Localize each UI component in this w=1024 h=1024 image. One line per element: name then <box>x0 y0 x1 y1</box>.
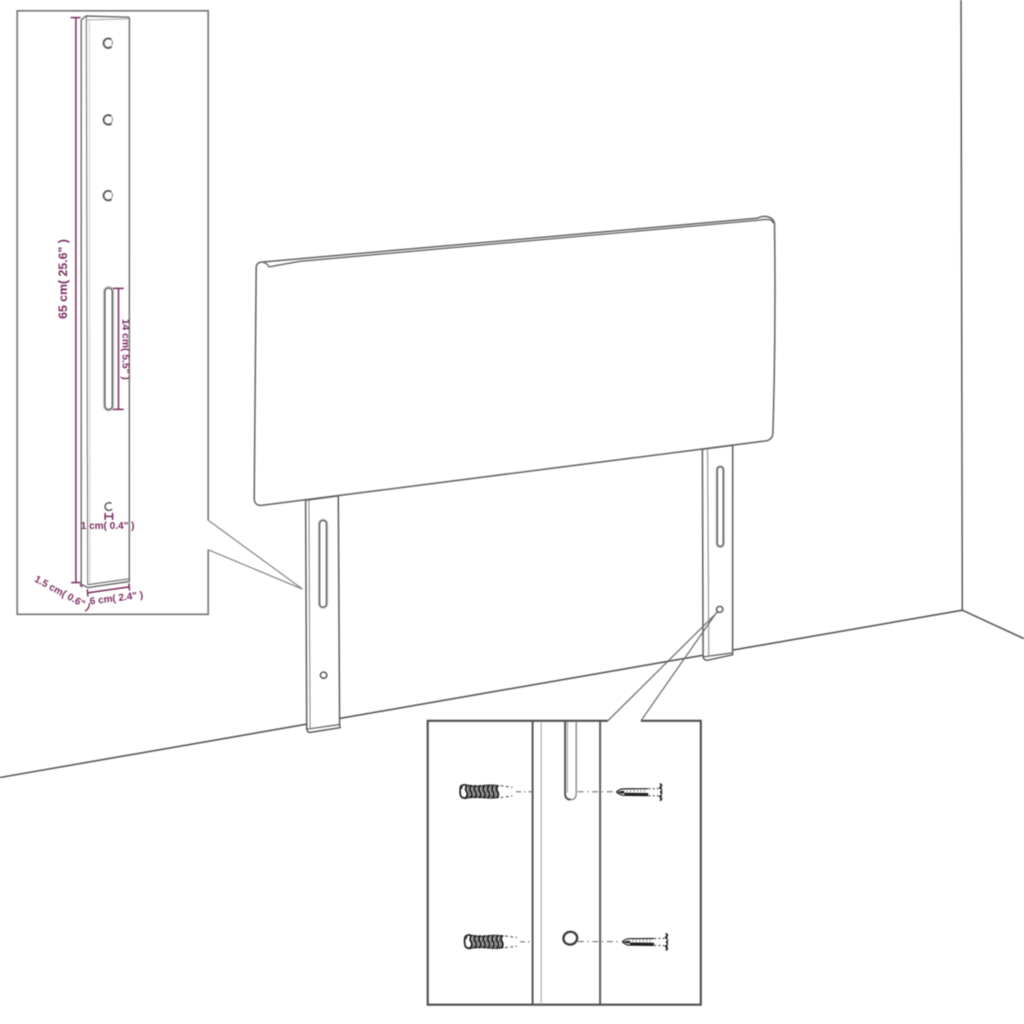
svg-text:65 cm( 25.6" ): 65 cm( 25.6" ) <box>56 239 70 319</box>
svg-text:14 cm( 5.5" ): 14 cm( 5.5" ) <box>120 319 131 380</box>
svg-text:1 cm( 0.4" ): 1 cm( 0.4" ) <box>81 521 135 532</box>
